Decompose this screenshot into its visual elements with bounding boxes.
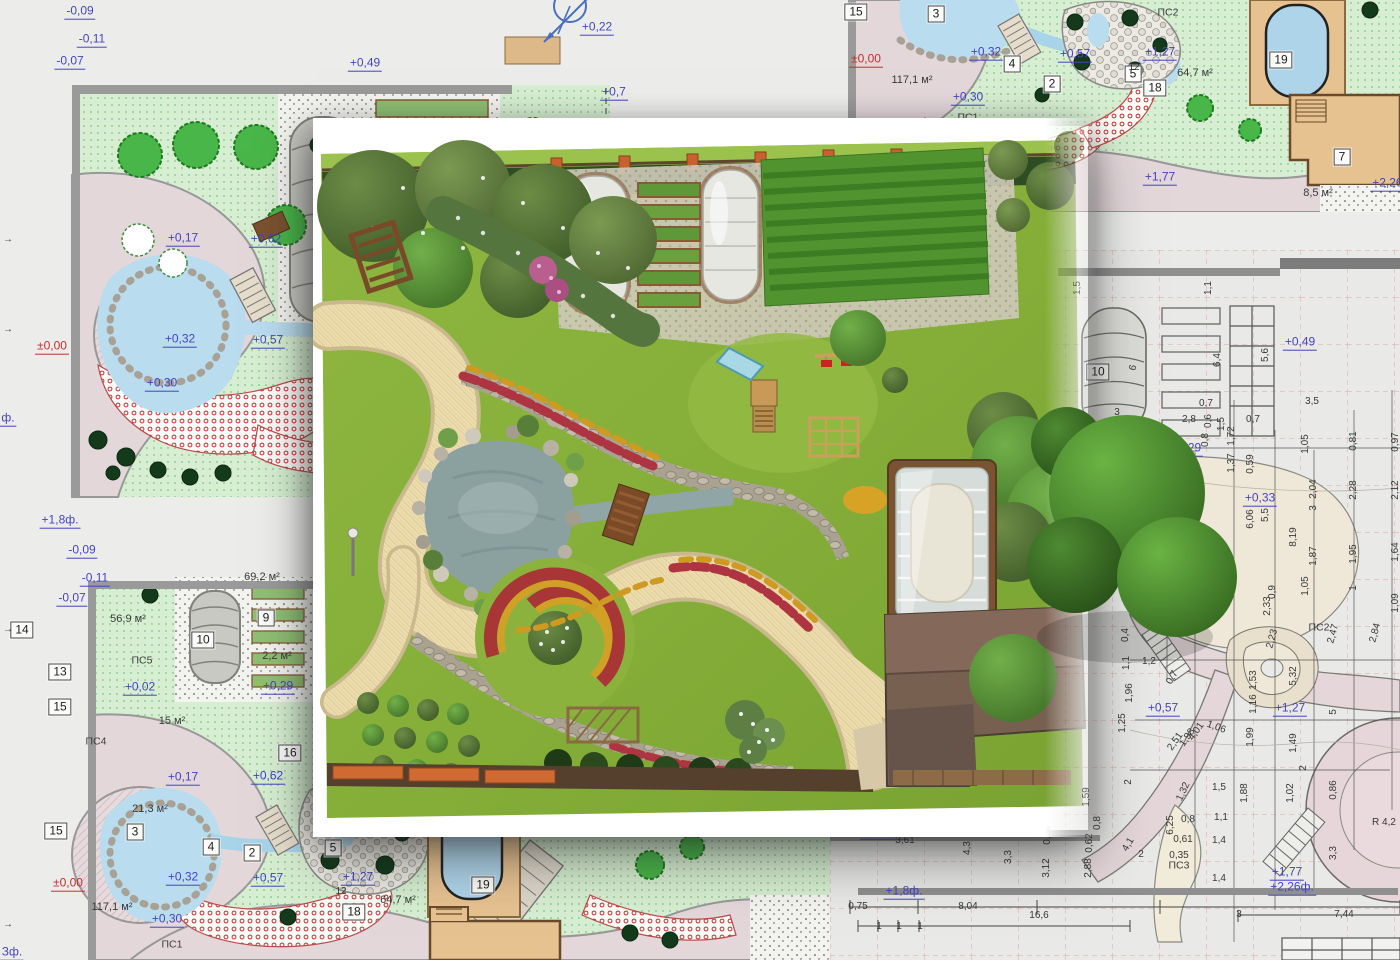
overlay-tree	[1005, 375, 1250, 680]
render-pool-pavilion	[888, 460, 996, 625]
render-marigold-patch	[843, 486, 887, 514]
title-block	[1282, 938, 1400, 960]
garden-3d-render	[313, 118, 1100, 837]
tech-wall-bottom	[858, 888, 1398, 895]
plan-gravel	[1320, 185, 1400, 212]
elevation-label: ф.	[0, 412, 17, 427]
elevation-label: -0,09	[64, 5, 95, 20]
render-spiral-bed	[475, 558, 635, 718]
elevation-label: Зф.	[0, 946, 24, 960]
plan-pool-zone	[1250, 0, 1345, 105]
plan-wall-top	[72, 85, 512, 94]
elevation-label: -0,09	[66, 544, 97, 559]
plan-gravel	[750, 895, 835, 960]
north-arrow-icon	[532, 0, 604, 46]
plan-greenhouse	[190, 591, 240, 683]
dimension-label: →	[3, 920, 13, 931]
render-bush	[882, 367, 908, 393]
elevation-label: +1,8ф.	[40, 514, 81, 529]
plan-wall-left	[72, 85, 80, 497]
render-greenhouse	[699, 166, 762, 304]
dimension-label: →	[3, 625, 13, 636]
dimension-label: →	[3, 325, 13, 336]
plan-rock-pond	[1087, 13, 1109, 47]
render-crop-field	[761, 148, 989, 306]
tech-wall	[1280, 258, 1400, 269]
landscape-plan-sheet: -0,09-0,11-0,07+0,49+0,22+0,7+0,17+0,62+…	[0, 0, 1400, 960]
plan-wall-left	[88, 581, 96, 960]
dimension-label: →	[3, 235, 13, 246]
render-tree	[830, 310, 886, 366]
